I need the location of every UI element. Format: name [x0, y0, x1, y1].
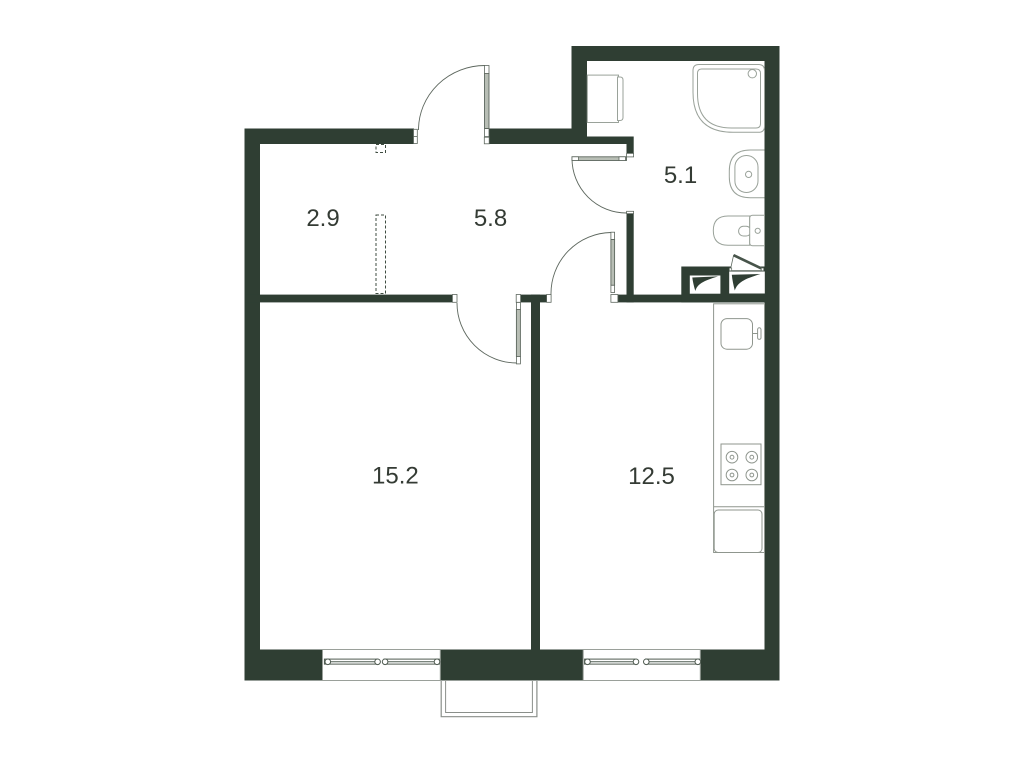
svg-text:5.8: 5.8: [474, 205, 507, 232]
svg-text:15.2: 15.2: [372, 463, 419, 490]
svg-text:2.9: 2.9: [306, 205, 339, 232]
svg-text:5.1: 5.1: [664, 162, 697, 189]
svg-text:12.5: 12.5: [628, 463, 675, 490]
